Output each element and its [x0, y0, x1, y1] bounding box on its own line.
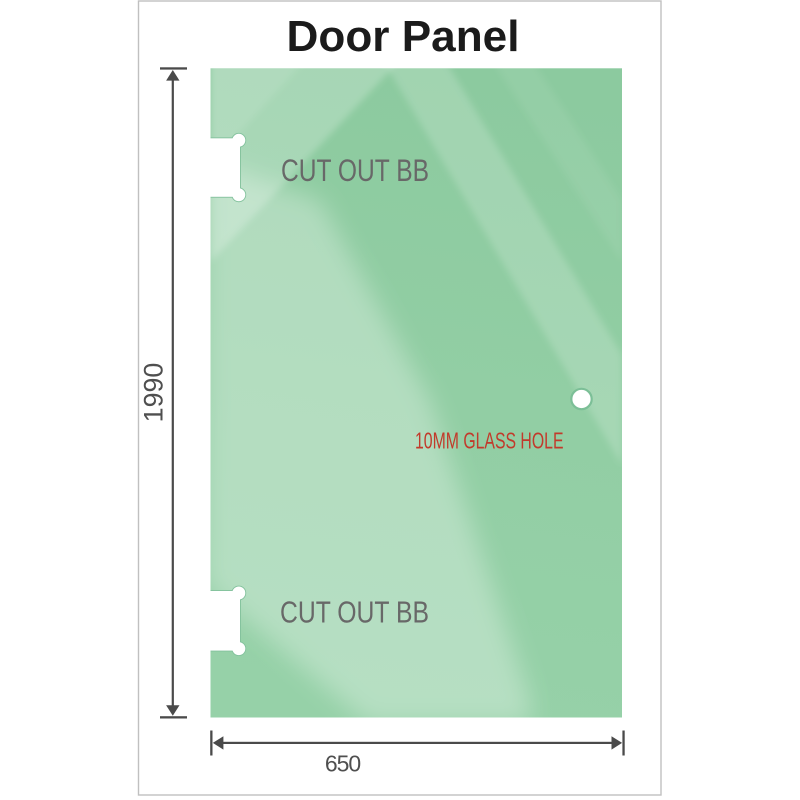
svg-text:CUT OUT BB: CUT OUT BB — [281, 152, 429, 188]
svg-text:10MM GLASS HOLE: 10MM GLASS HOLE — [415, 428, 564, 454]
svg-text:1990: 1990 — [139, 363, 169, 423]
svg-text:CUT OUT BB: CUT OUT BB — [280, 595, 429, 630]
svg-text:650: 650 — [325, 751, 361, 777]
svg-text:Door Panel: Door Panel — [287, 12, 520, 61]
